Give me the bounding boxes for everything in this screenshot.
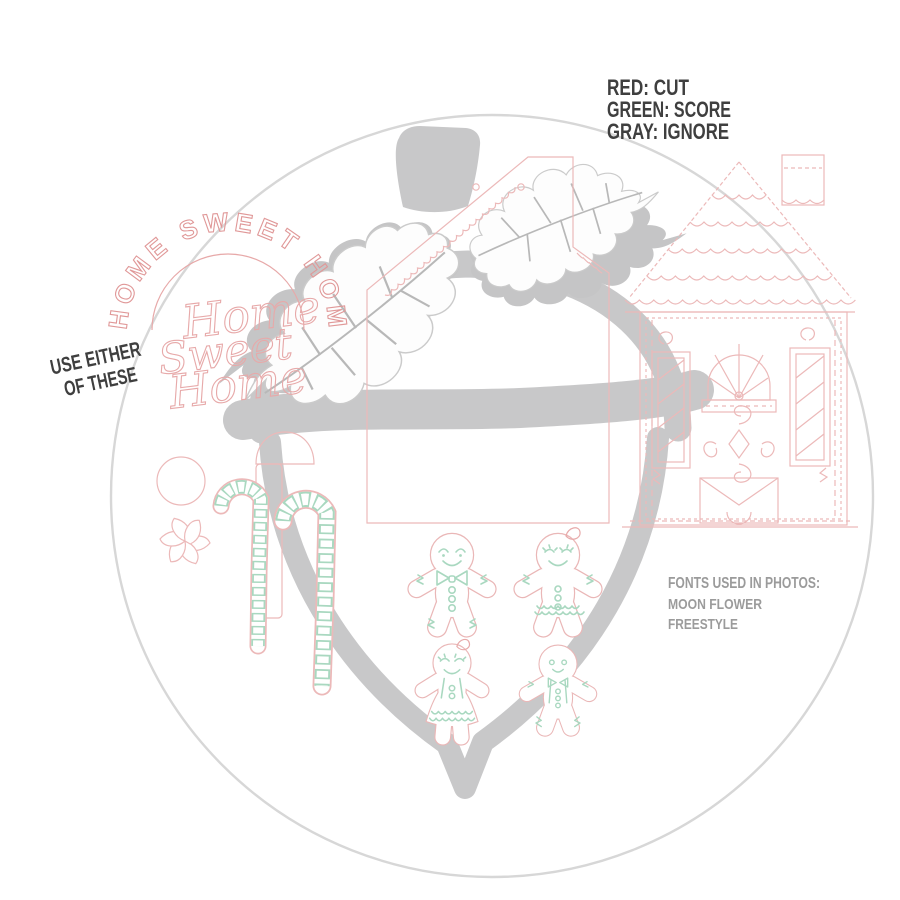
house-scroll-ornament [704, 406, 774, 482]
gingerbread-boy-2 [517, 646, 599, 738]
house-chimney [782, 155, 824, 205]
script-text-group: Home Sweet Home [156, 279, 324, 420]
house-envelope-door [700, 478, 778, 524]
house-arch-window [702, 344, 776, 412]
note-use-either: USE EITHER OF THESE [48, 338, 148, 403]
note-fonts-title: FONTS USED IN PHOTOS: [668, 575, 820, 592]
legend: RED: CUT GREEN: SCORE GRAY: IGNORE [607, 75, 731, 144]
acorn-stem [396, 126, 480, 212]
note-fonts-line1: MOON FLOWER [668, 596, 762, 613]
peppermint-circle [157, 457, 205, 505]
legend-gray: GRAY: IGNORE [607, 119, 729, 144]
note-fonts: FONTS USED IN PHOTOS: MOON FLOWER FREEST… [668, 575, 820, 633]
gingerbread-boy-1 [406, 534, 499, 639]
house-window-right [790, 328, 830, 482]
design-canvas: HOME SWEET HOME Home Sweet Home [0, 0, 900, 900]
candy-cane-small [221, 487, 261, 646]
peppermint-swirl [160, 515, 210, 568]
note-fonts-line2: FREESTYLE [668, 616, 738, 633]
